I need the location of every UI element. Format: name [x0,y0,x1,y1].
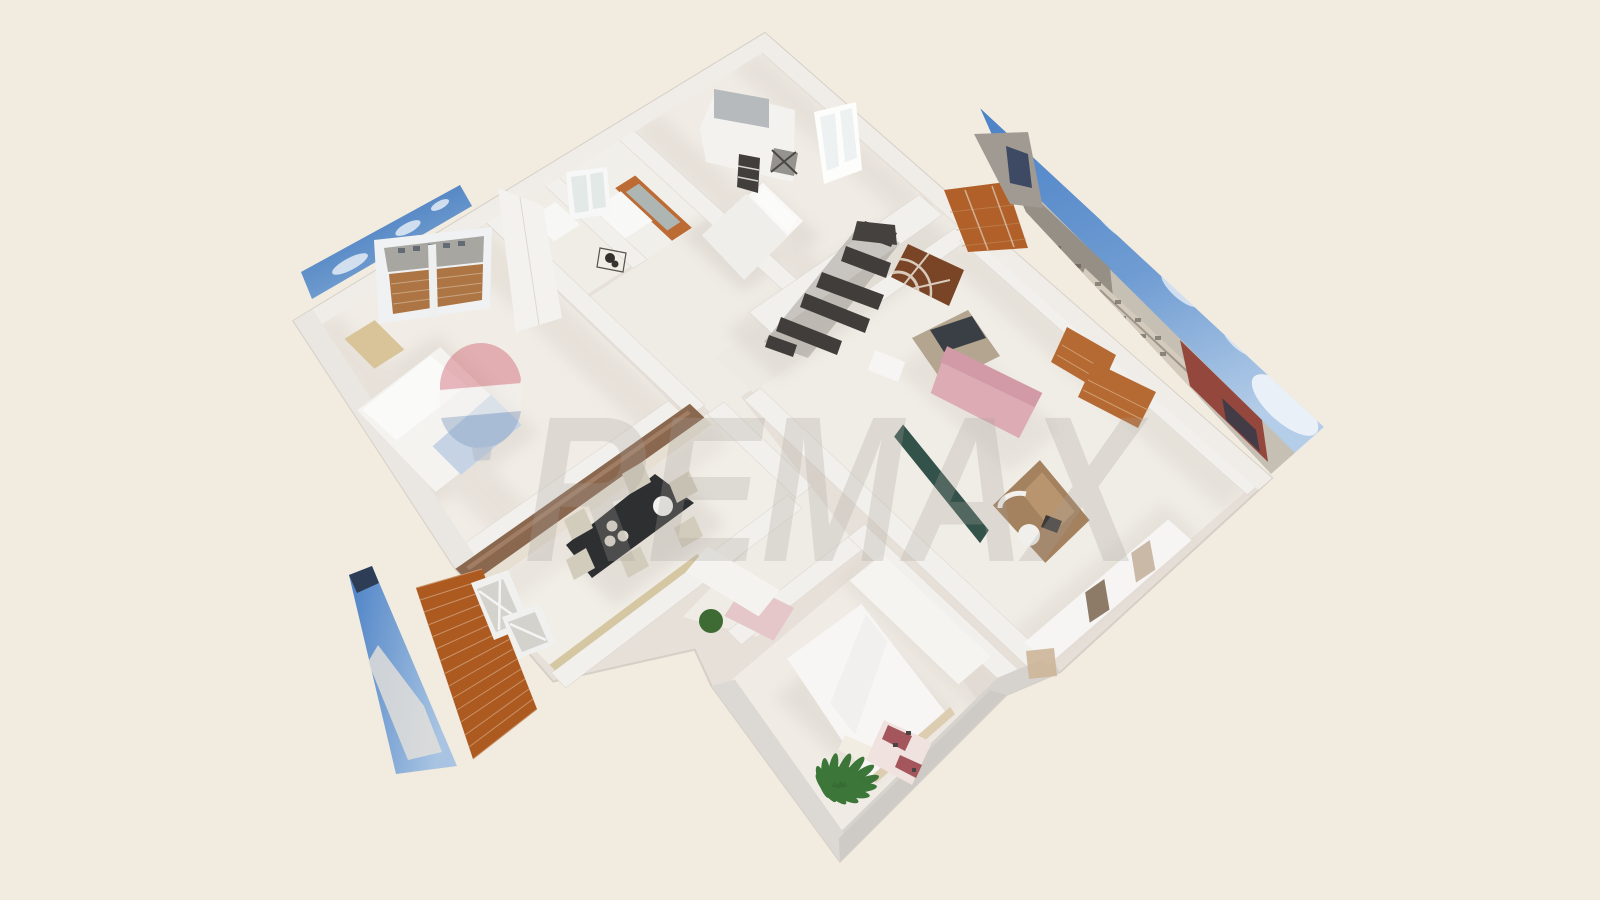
svg-text:REMAX: REMAX [524,374,1149,606]
